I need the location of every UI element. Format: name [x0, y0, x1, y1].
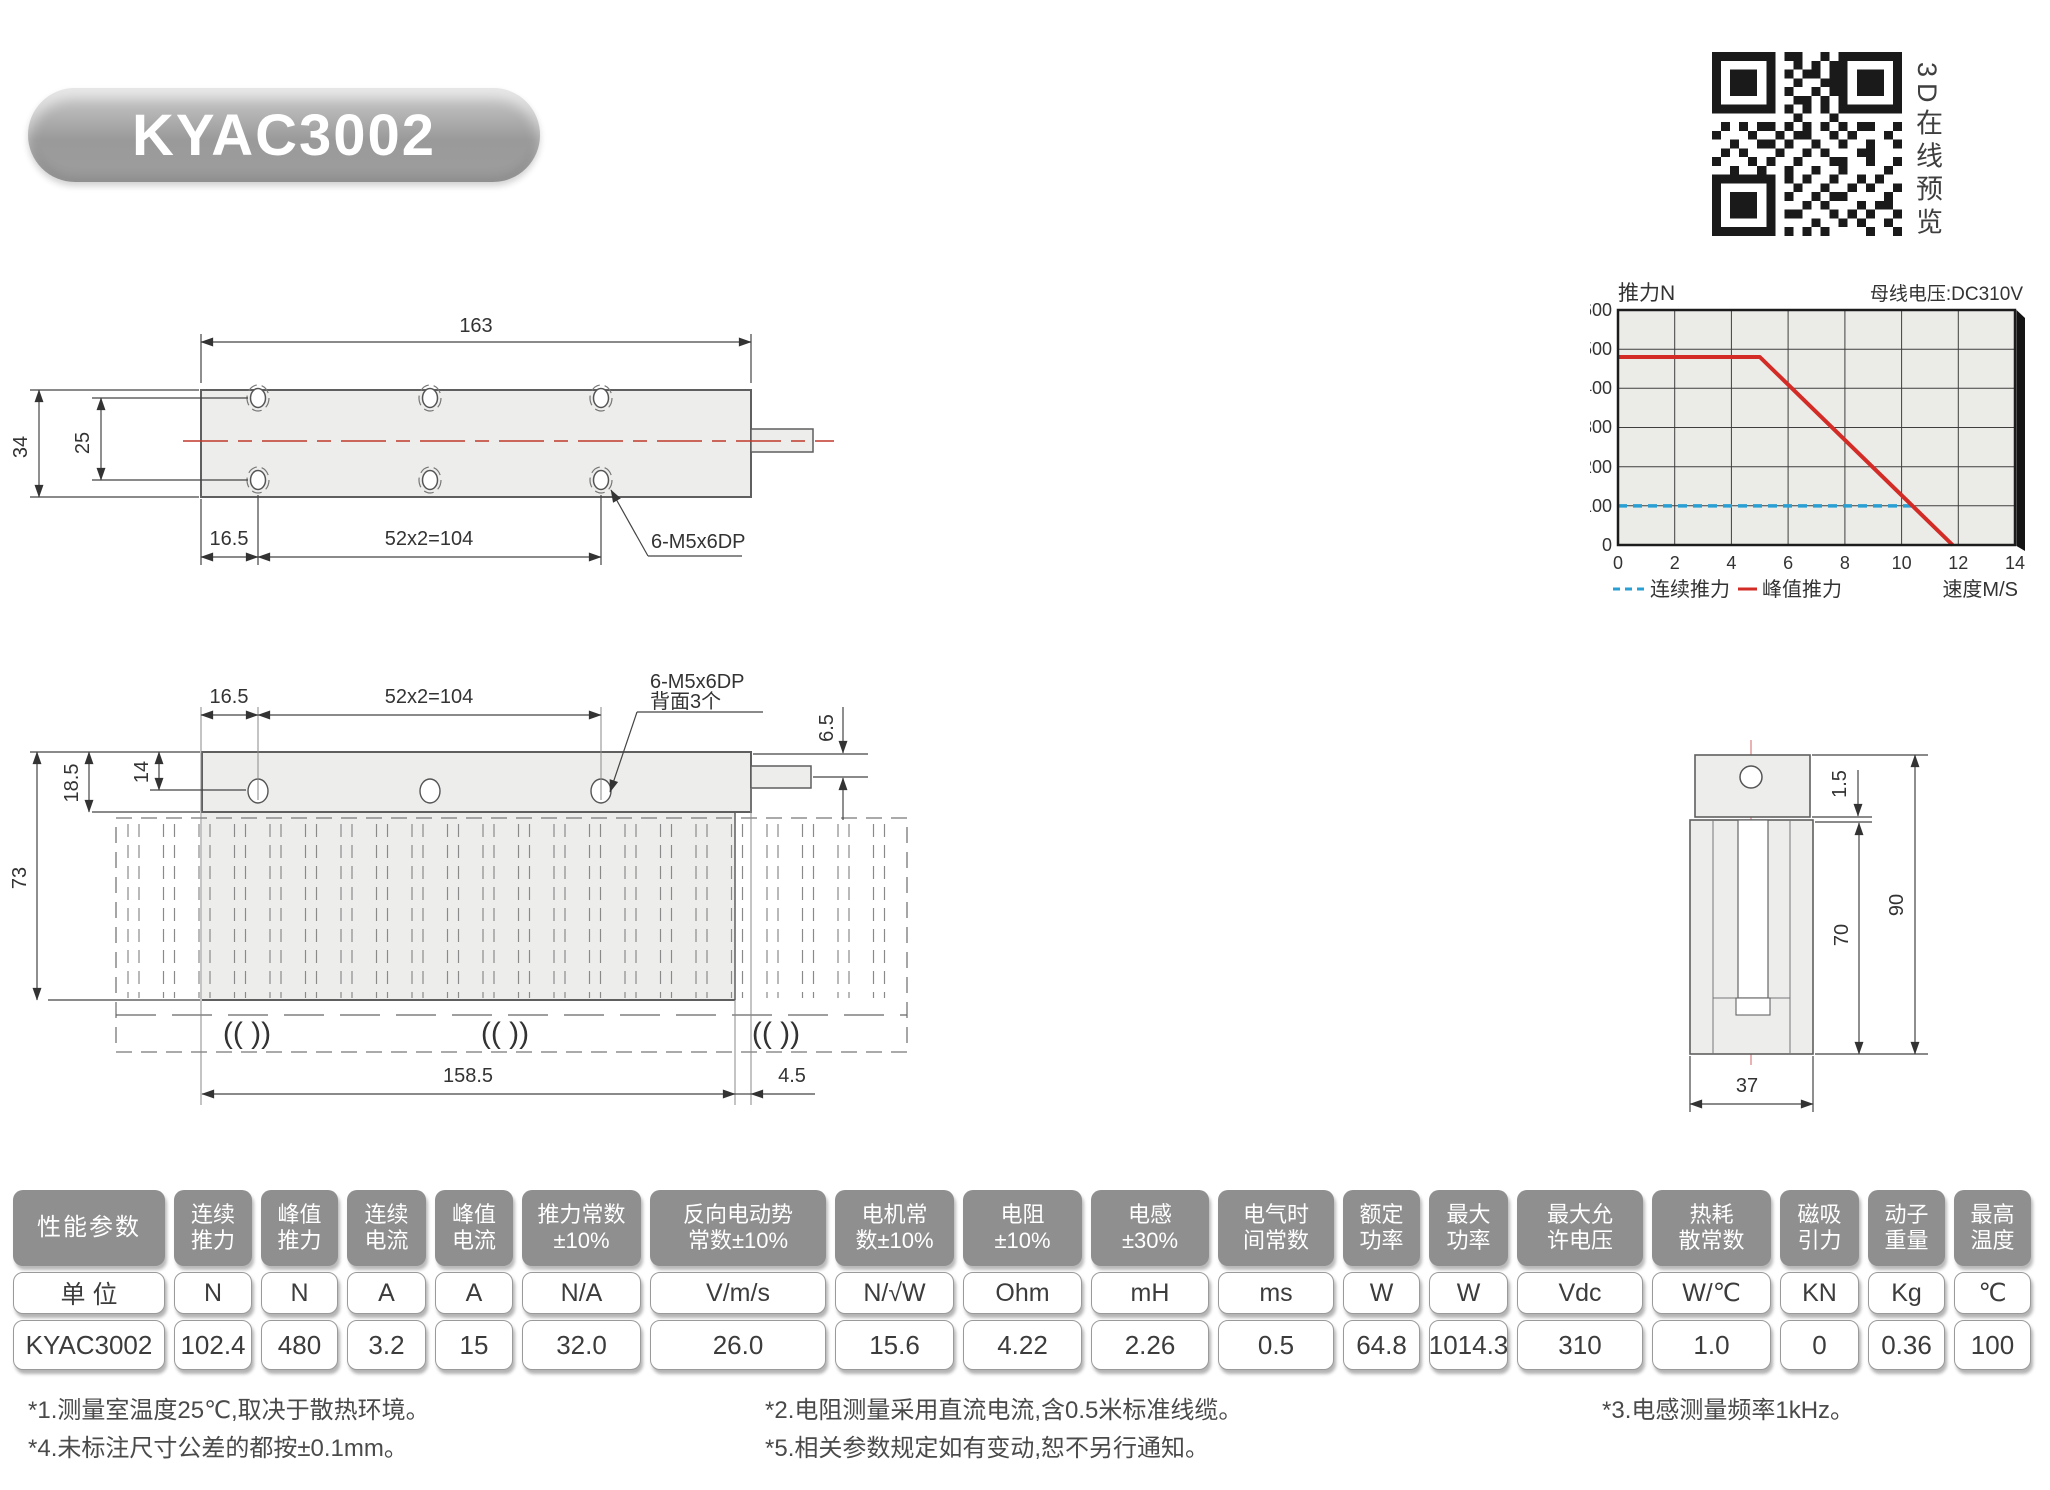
dim-body-height-label: 18.5: [61, 764, 83, 803]
table-unit-cell: W: [1343, 1272, 1420, 1314]
hole-note-line2: 背面3个: [650, 690, 721, 713]
table-unit-cell: A: [347, 1272, 426, 1314]
legend-continuous-label: 连续推力: [1650, 578, 1730, 601]
table-value-cell: 26.0: [650, 1320, 826, 1370]
roller-symbol: (( )): [481, 1017, 529, 1050]
dim-pitch-label: 52x2=104: [385, 686, 473, 708]
svg-text:2: 2: [1670, 553, 1680, 573]
dim-offset-label: 16.5: [210, 528, 249, 550]
svg-text:400: 400: [1590, 378, 1612, 398]
dim-height-label: 34: [10, 436, 32, 458]
table-header-cell: 电阻 ±10%: [963, 1190, 1082, 1266]
table-header-cell: 反向电动势 常数±10%: [650, 1190, 826, 1266]
table-unit-row: 单 位 N N A A N/A V/m/s N/√W Ohm mH ms W W…: [13, 1272, 2043, 1314]
footnote-column-2: *2.电阻测量采用直流电流,含0.5米标准线缆。 *5.相关参数规定如有变动,恕…: [765, 1392, 1242, 1468]
magnet-track-pattern: [120, 822, 902, 1000]
table-value-cell: 15: [435, 1320, 513, 1370]
table-header-cell: 连续 电流: [347, 1190, 426, 1266]
footnote: *3.电感测量频率1kHz。: [1602, 1392, 1854, 1430]
table-value-cell: 102.4: [174, 1320, 252, 1370]
table-unit-cell: Vdc: [1517, 1272, 1643, 1314]
table-unit-cell: W/℃: [1652, 1272, 1771, 1314]
svg-text:200: 200: [1590, 457, 1612, 477]
qr-code: [1712, 52, 1902, 236]
footnote: *2.电阻测量采用直流电流,含0.5米标准线缆。: [765, 1392, 1242, 1430]
dim-width-label: 37: [1736, 1075, 1758, 1097]
table-value-cell: 2.26: [1091, 1320, 1209, 1370]
table-header-cell: 最大允 许电压: [1517, 1190, 1643, 1266]
footnote: *5.相关参数规定如有变动,恕不另行通知。: [765, 1430, 1242, 1468]
table-value-cell: 480: [261, 1320, 338, 1370]
table-value-cell: 3.2: [347, 1320, 426, 1370]
model-title: KYAC3002: [132, 102, 436, 169]
table-unit-cell: ℃: [1954, 1272, 2031, 1314]
legend-peak-label: 峰值推力: [1762, 578, 1842, 601]
svg-text:8: 8: [1840, 553, 1850, 573]
table-unit-cell: W: [1429, 1272, 1508, 1314]
chart-x-title: 速度M/S: [1942, 578, 2018, 601]
slider-hole: [1740, 766, 1762, 788]
svg-text:4: 4: [1726, 553, 1736, 573]
table-header-row: 性能参数 连续 推力 峰值 推力 连续 电流 峰值 电流 推力常数 ±10% 反…: [13, 1190, 2043, 1266]
footnote-column-3: *3.电感测量频率1kHz。: [1602, 1392, 1854, 1430]
table-value-row: KYAC3002 102.4 480 3.2 15 32.0 26.0 15.6…: [13, 1320, 2043, 1370]
dim-offset-label: 16.5: [210, 686, 249, 708]
dim-pitch-label: 52x2=104: [385, 528, 473, 550]
table-unit-cell: KN: [1780, 1272, 1859, 1314]
table-value-cell: 0.5: [1218, 1320, 1334, 1370]
table-unit-cell: V/m/s: [650, 1272, 826, 1314]
svg-text:300: 300: [1590, 417, 1612, 437]
roller-symbol: (( )): [223, 1017, 271, 1050]
table-header-cell: 峰值 电流: [435, 1190, 513, 1266]
dim-hole-span-label: 25: [72, 432, 94, 454]
table-header-cell: 性能参数: [13, 1190, 165, 1266]
svg-text:14: 14: [2005, 553, 2025, 573]
svg-text:100: 100: [1590, 496, 1612, 516]
dim-total-height-label: 73: [9, 867, 31, 889]
motor-body-side-view: [202, 752, 751, 812]
table-unit-cell: 单 位: [13, 1272, 165, 1314]
dim-stator-length-label: 158.5: [443, 1065, 493, 1087]
model-title-badge: KYAC3002: [28, 88, 540, 182]
table-unit-cell: A: [435, 1272, 513, 1314]
table-value-cell: 310: [1517, 1320, 1643, 1370]
dim-length-label: 163: [459, 315, 492, 337]
channel-slot: [1738, 820, 1768, 998]
table-value-cell: 15.6: [835, 1320, 954, 1370]
table-header-cell: 磁吸 引力: [1780, 1190, 1859, 1266]
cable-tab-side-view: [751, 766, 811, 788]
dim-hole-depth-label: 14: [131, 761, 153, 783]
table-unit-cell: ms: [1218, 1272, 1334, 1314]
table-value-cell: 0: [1780, 1320, 1859, 1370]
table-value-cell: 32.0: [522, 1320, 641, 1370]
svg-text:6: 6: [1783, 553, 1793, 573]
hole-note-line1: 6-M5x6DP: [650, 671, 744, 693]
table-unit-cell: Ohm: [963, 1272, 1082, 1314]
dim-air-gap-label: 1.5: [1829, 770, 1851, 798]
table-header-cell: 动子 重量: [1868, 1190, 1945, 1266]
svg-text:0: 0: [1602, 535, 1612, 555]
table-header-cell: 峰值 推力: [261, 1190, 338, 1266]
roller-symbols: (( )) (( )) (( )): [223, 1017, 800, 1050]
table-value-cell: KYAC3002: [13, 1320, 165, 1370]
table-unit-cell: mH: [1091, 1272, 1209, 1314]
plot-shadow-edge: [2017, 310, 2026, 551]
table-value-cell: 4.22: [963, 1320, 1082, 1370]
side-view-drawing: 16.5 52x2=104 6-M5x6DP 背面3个 6.5 18.5 14 …: [0, 630, 960, 1120]
table-header-cell: 电机常 数±10%: [835, 1190, 954, 1266]
svg-text:600: 600: [1590, 300, 1612, 320]
end-view-drawing: 1.5 70 90 37: [1640, 715, 2050, 1160]
svg-text:12: 12: [1948, 553, 1968, 573]
qr-caption: 3D在线预览: [1908, 62, 1947, 242]
footnote: *1.测量室温度25℃,取决于散热环境。: [28, 1392, 430, 1430]
slot-notch: [1736, 998, 1770, 1015]
dim-end-gap-label: 4.5: [778, 1065, 806, 1087]
table-header-cell: 最大 功率: [1429, 1190, 1508, 1266]
svg-text:10: 10: [1892, 553, 1912, 573]
parameter-table: 性能参数 连续 推力 峰值 推力 连续 电流 峰值 电流 推力常数 ±10% 反…: [13, 1190, 2043, 1370]
svg-text:0: 0: [1613, 553, 1623, 573]
datasheet-page: KYAC3002 3D在线预览 推力N 母线电压:DC310V: [0, 0, 2050, 1490]
force-speed-chart: 推力N 母线电压:DC310V 600 500 400 300 200: [1590, 270, 2050, 620]
dim-total-height-label: 90: [1886, 894, 1908, 916]
footnote: *4.未标注尺寸公差的都按±0.1mm。: [28, 1430, 430, 1468]
table-header-cell: 热耗 散常数: [1652, 1190, 1771, 1266]
table-unit-cell: N/√W: [835, 1272, 954, 1314]
footnote-column-1: *1.测量室温度25℃,取决于散热环境。 *4.未标注尺寸公差的都按±0.1mm…: [28, 1392, 430, 1468]
chart-legend: 连续推力 峰值推力 速度M/S: [1613, 578, 2018, 601]
y-tick-labels: 600 500 400 300 200 100 0: [1590, 300, 1612, 555]
table-header-cell: 最高 温度: [1954, 1190, 2031, 1266]
table-unit-cell: Kg: [1868, 1272, 1945, 1314]
table-value-cell: 1.0: [1652, 1320, 1771, 1370]
table-value-cell: 100: [1954, 1320, 2031, 1370]
table-unit-cell: N: [174, 1272, 252, 1314]
x-tick-labels: 0 2 4 6 8 10 12 14: [1613, 553, 2025, 573]
table-header-cell: 推力常数 ±10%: [522, 1190, 641, 1266]
table-unit-cell: N: [261, 1272, 338, 1314]
chart-y-title: 推力N: [1618, 282, 1675, 305]
dim-cable-offset-label: 6.5: [816, 714, 838, 742]
top-view-drawing: 163 34 25 16.5 52x2=104 6-M5x6DP: [0, 260, 880, 590]
dim-slot-depth-label: 70: [1831, 924, 1853, 946]
table-value-cell: 1014.3: [1429, 1320, 1508, 1370]
svg-text:500: 500: [1590, 339, 1612, 359]
hole-note-label: 6-M5x6DP: [651, 531, 745, 553]
table-unit-cell: N/A: [522, 1272, 641, 1314]
table-value-cell: 64.8: [1343, 1320, 1420, 1370]
roller-symbol: (( )): [752, 1017, 800, 1050]
table-value-cell: 0.36: [1868, 1320, 1945, 1370]
table-header-cell: 额定 功率: [1343, 1190, 1420, 1266]
table-header-cell: 电气时 间常数: [1218, 1190, 1334, 1266]
chart-bus-voltage-note: 母线电压:DC310V: [1870, 283, 2023, 305]
table-header-cell: 电感 ±30%: [1091, 1190, 1209, 1266]
qr-code-pattern: [1712, 52, 1902, 236]
motor-body-top-view: [201, 390, 751, 497]
table-header-cell: 连续 推力: [174, 1190, 252, 1266]
